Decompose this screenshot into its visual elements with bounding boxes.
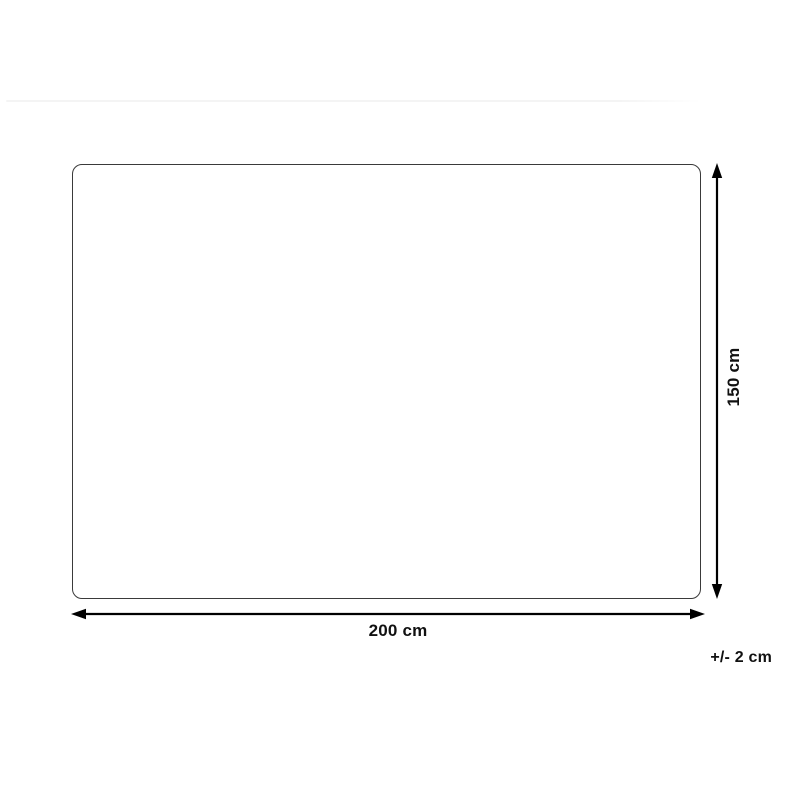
height-dimension-label: 150 cm (724, 317, 744, 437)
width-dimension-label: 200 cm (328, 621, 468, 641)
arrowhead-down-icon (712, 584, 722, 599)
dimension-diagram: 150 cm 200 cm +/- 2 cm (0, 0, 800, 800)
tolerance-label: +/- 2 cm (710, 648, 772, 668)
height-dimension-arrow (709, 162, 725, 600)
width-dimension-arrow (70, 606, 706, 622)
faint-divider-line (6, 100, 702, 102)
arrowhead-right-icon (690, 609, 705, 619)
product-outline-rect (72, 164, 701, 599)
arrowhead-up-icon (712, 163, 722, 178)
arrowhead-left-icon (71, 609, 86, 619)
